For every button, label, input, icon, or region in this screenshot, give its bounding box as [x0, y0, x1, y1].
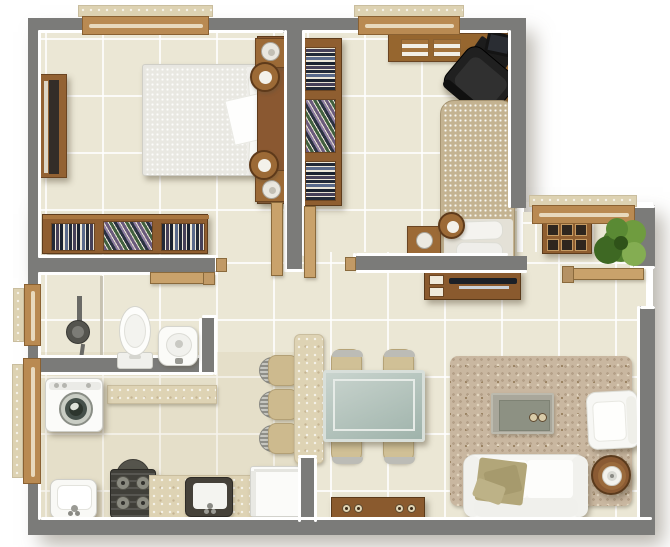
tv-rack: [424, 269, 521, 300]
bar-stool: [259, 422, 298, 455]
washing-machine: [45, 378, 103, 432]
wall-kitchen-stub: [301, 458, 314, 522]
door-entry-hinge: [562, 266, 574, 283]
knob-dot: [345, 507, 348, 510]
fridge-shade: [251, 471, 256, 516]
books: [305, 47, 336, 91]
window-bathroom: [24, 284, 41, 346]
wall-trim: [214, 318, 217, 375]
breakfast-bar: [294, 334, 324, 464]
faucet-handle: [204, 509, 209, 514]
bar-stool: [259, 388, 298, 421]
compartment: [561, 239, 573, 251]
wall-bedroom2-right: [511, 18, 526, 208]
knob: [86, 383, 91, 388]
wall-trim: [356, 270, 527, 273]
wall-trim: [508, 30, 511, 208]
decor-ball: [529, 413, 538, 422]
wall-trim: [356, 253, 508, 256]
wall-bedroom2-bottom: [356, 256, 527, 270]
duvet: [443, 103, 514, 221]
kitchen-sink: [185, 477, 233, 517]
bookshelf-bedroom1: [42, 214, 208, 254]
sofa: [463, 454, 587, 518]
tv-stand: [459, 286, 509, 289]
wall-trim: [640, 306, 655, 309]
burner-cap: [141, 501, 145, 505]
window-bedroom2: [358, 16, 460, 35]
chair-back: [332, 350, 363, 357]
burner-cap: [121, 501, 125, 505]
door-entry: [570, 268, 644, 280]
armchair: [586, 390, 641, 451]
bar-stool: [259, 354, 298, 387]
drain: [175, 340, 183, 348]
bathroom-sink: [158, 326, 198, 366]
compartment: [575, 224, 587, 236]
bowl-center: [610, 474, 614, 478]
chair-back: [384, 457, 415, 464]
faucet-handle: [75, 511, 80, 516]
shower: [60, 296, 96, 360]
compartment: [575, 239, 587, 251]
window-glass-line: [31, 367, 35, 477]
knob: [54, 383, 59, 388]
wardrobe-slot: [44, 81, 48, 173]
books: [51, 223, 95, 251]
knob-dot: [410, 507, 413, 510]
door-jamb: [216, 258, 227, 272]
wall-trim: [38, 255, 218, 258]
coffee-table: [491, 393, 554, 434]
window-laundry: [23, 358, 41, 484]
lamp-bedroom2: [438, 212, 465, 239]
window-glass-line: [365, 24, 454, 28]
dining-sideboard: [331, 497, 425, 519]
wall-trim: [637, 306, 640, 520]
wall-trim: [298, 458, 301, 522]
tv: [449, 278, 517, 284]
door-bedroom1: [271, 202, 283, 276]
toilet: [114, 306, 156, 370]
apartment-floor-plan: [0, 0, 670, 547]
books: [305, 99, 336, 153]
chair-back: [384, 350, 415, 357]
nightstand-bedroom2: [407, 226, 441, 254]
lamp-bottom: [249, 150, 279, 180]
wall-bottom: [28, 520, 655, 535]
faucet-handle: [68, 511, 73, 516]
chair-back: [332, 457, 363, 464]
window-sill: [13, 288, 24, 342]
toilet-seat: [124, 314, 146, 348]
compartment: [561, 224, 573, 236]
wall-right-lower: [640, 306, 655, 535]
books: [305, 161, 336, 201]
potted-plant: [594, 218, 646, 266]
faucet: [175, 358, 183, 364]
window-sill: [12, 364, 23, 478]
dish-center: [269, 187, 276, 194]
laundry-counter: [107, 385, 217, 404]
wall-trim: [199, 318, 202, 375]
books: [161, 223, 205, 251]
laptop-screen: [488, 34, 511, 54]
window-glass-line: [31, 291, 35, 341]
lamp-shade: [258, 159, 271, 172]
dish-top: [261, 42, 280, 61]
shower-screen: [100, 276, 103, 356]
wall-trim: [284, 30, 287, 272]
desk-drawers: [433, 39, 461, 57]
dish-center: [268, 49, 275, 56]
burner-cap: [121, 481, 125, 485]
laundry-tub: [50, 479, 97, 519]
wall-trim: [38, 30, 41, 258]
window-glass-line: [539, 213, 629, 217]
sofa-seat: [527, 460, 573, 498]
wall-trim: [202, 315, 217, 318]
wall-trim: [41, 372, 214, 375]
flush-button: [129, 355, 141, 359]
lamp-top: [250, 62, 280, 92]
wall-divider: [287, 18, 302, 272]
books: [103, 221, 153, 251]
cup: [416, 232, 433, 249]
dish-bottom: [262, 180, 281, 199]
table-inner-edge: [333, 379, 415, 431]
armchair-seat: [592, 400, 627, 442]
wall-trim: [41, 517, 652, 520]
shelf-lip: [43, 215, 209, 219]
wardrobe-panel: [49, 80, 59, 174]
faucet-handle: [211, 509, 216, 514]
rack-drawer: [429, 287, 444, 297]
fridge: [250, 466, 303, 517]
wall-bedroom1-bottom: [28, 258, 218, 272]
window-bedroom1: [82, 16, 209, 35]
wall-trim: [314, 458, 317, 522]
compartment: [547, 224, 559, 236]
knob-dot: [357, 507, 360, 510]
lamp-shade: [447, 221, 459, 233]
desk-drawers: [401, 39, 429, 57]
fridge-handle: [254, 469, 301, 472]
window-glass-line: [89, 24, 203, 28]
compartment: [547, 239, 559, 251]
knob: [62, 383, 67, 388]
side-table: [591, 455, 631, 495]
wardrobe: [40, 74, 67, 178]
foliage-center: [614, 236, 628, 250]
door-jamb: [203, 272, 215, 285]
door-jamb: [345, 257, 356, 271]
wall-trim: [284, 269, 305, 272]
decor-ball: [538, 413, 547, 422]
dining-table: [323, 370, 425, 442]
lamp-shade: [259, 71, 272, 84]
burner-cap: [141, 481, 145, 485]
knob-dot: [398, 507, 401, 510]
door-bedroom2: [304, 206, 316, 278]
shower-head-center: [72, 326, 84, 338]
rack-drawer: [429, 275, 444, 285]
